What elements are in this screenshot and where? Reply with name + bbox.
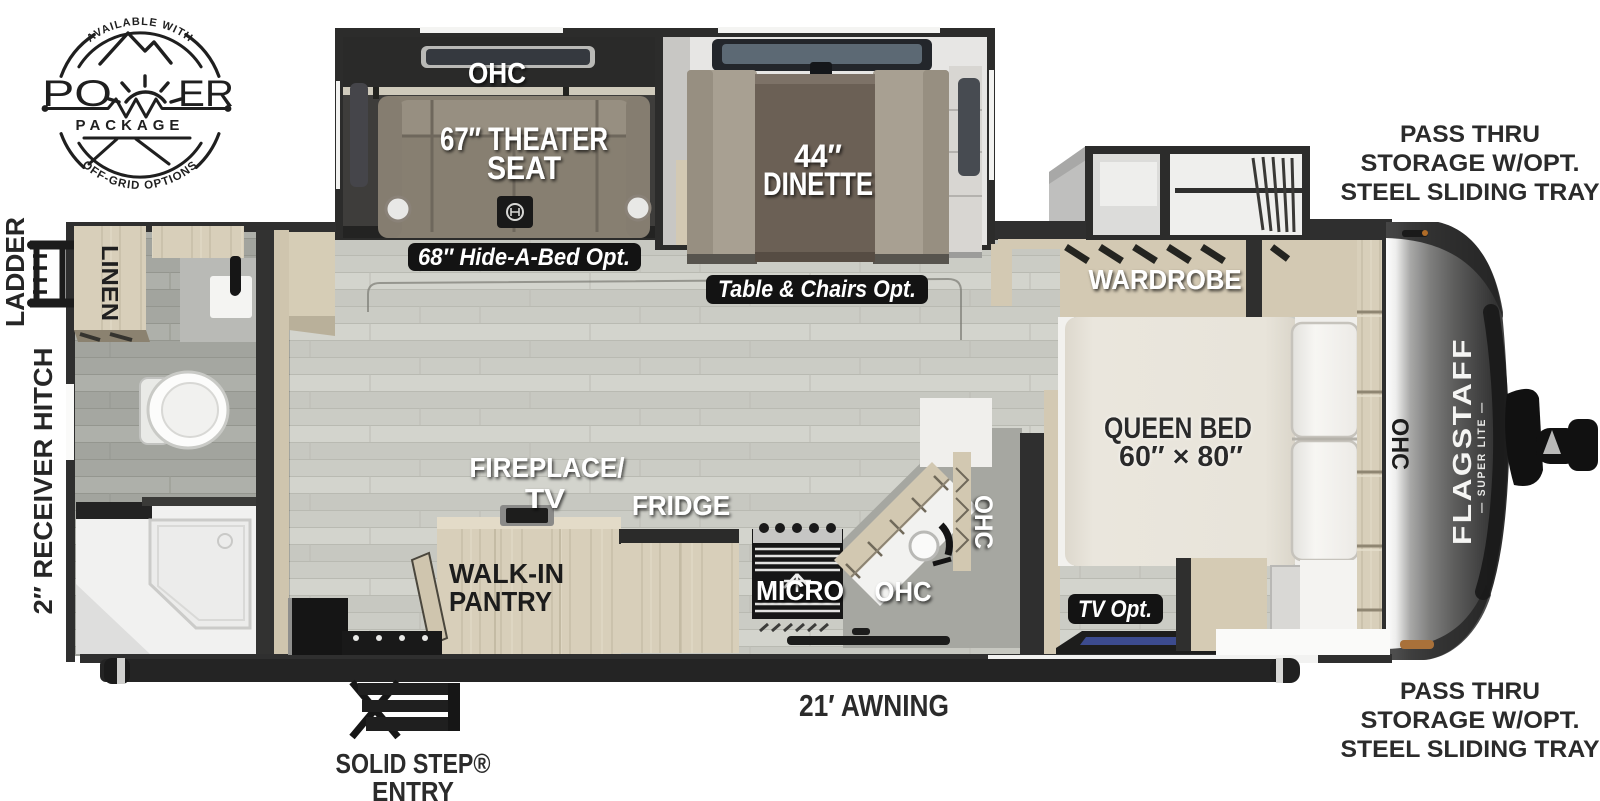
svg-text:OHC: OHC bbox=[969, 495, 997, 549]
svg-text:FRIDGE: FRIDGE bbox=[632, 490, 730, 521]
svg-text:SOLID STEP®: SOLID STEP® bbox=[336, 748, 491, 779]
svg-text:PASS THRU: PASS THRU bbox=[1400, 678, 1540, 705]
svg-text:TV: TV bbox=[525, 483, 565, 514]
svg-text:68″ Hide-A-Bed Opt.: 68″ Hide-A-Bed Opt. bbox=[418, 244, 630, 271]
svg-text:PASS THRU: PASS THRU bbox=[1400, 121, 1540, 148]
svg-text:TV Opt.: TV Opt. bbox=[1078, 596, 1152, 623]
svg-text:ENTRY: ENTRY bbox=[372, 776, 454, 801]
svg-text:— SUPER LITE —: — SUPER LITE — bbox=[1476, 401, 1488, 513]
svg-text:LINEN: LINEN bbox=[97, 245, 123, 321]
svg-text:MICRO: MICRO bbox=[756, 575, 844, 606]
svg-text:FLAGSTAFF: FLAGSTAFF bbox=[1447, 337, 1477, 545]
svg-text:21′ AWNING: 21′ AWNING bbox=[799, 688, 949, 723]
svg-text:2″ RECEIVER HITCH: 2″ RECEIVER HITCH bbox=[28, 348, 58, 615]
svg-text:STORAGE W/OPT.: STORAGE W/OPT. bbox=[1361, 150, 1580, 177]
svg-text:AVAILABLE WITH: AVAILABLE WITH bbox=[85, 16, 196, 45]
svg-text:DINETTE: DINETTE bbox=[763, 166, 873, 202]
svg-text:STORAGE W/OPT.: STORAGE W/OPT. bbox=[1361, 707, 1580, 734]
svg-text:Table & Chairs Opt.: Table & Chairs Opt. bbox=[718, 276, 916, 303]
svg-text:WALK-IN: WALK-IN bbox=[449, 558, 564, 589]
svg-text:PANTRY: PANTRY bbox=[449, 586, 552, 617]
svg-text:STEEL SLIDING TRAY: STEEL SLIDING TRAY bbox=[1341, 179, 1600, 206]
svg-text:LADDER: LADDER bbox=[0, 217, 30, 327]
svg-text:OHC: OHC bbox=[468, 58, 526, 90]
svg-text:FIREPLACE/: FIREPLACE/ bbox=[470, 452, 625, 483]
svg-text:STEEL SLIDING TRAY: STEEL SLIDING TRAY bbox=[1341, 736, 1600, 763]
svg-text:OHC: OHC bbox=[1386, 418, 1413, 470]
svg-text:PACKAGE: PACKAGE bbox=[76, 117, 185, 134]
svg-text:OHC: OHC bbox=[875, 576, 932, 607]
svg-text:WARDROBE: WARDROBE bbox=[1089, 264, 1242, 295]
svg-text:SEAT: SEAT bbox=[487, 150, 561, 186]
svg-text:60″ × 80″: 60″ × 80″ bbox=[1119, 441, 1243, 473]
